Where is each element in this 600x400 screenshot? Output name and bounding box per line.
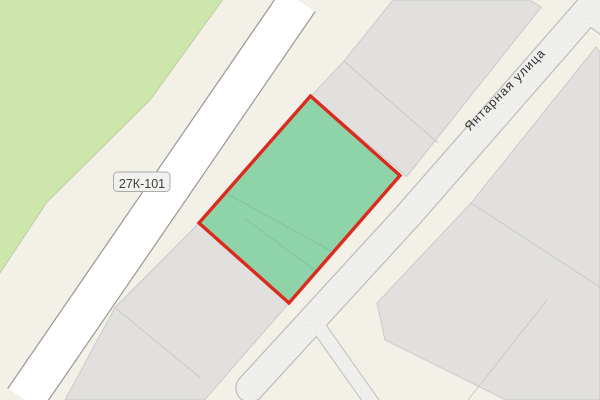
svg-text:27К-101: 27К-101 (119, 177, 165, 191)
